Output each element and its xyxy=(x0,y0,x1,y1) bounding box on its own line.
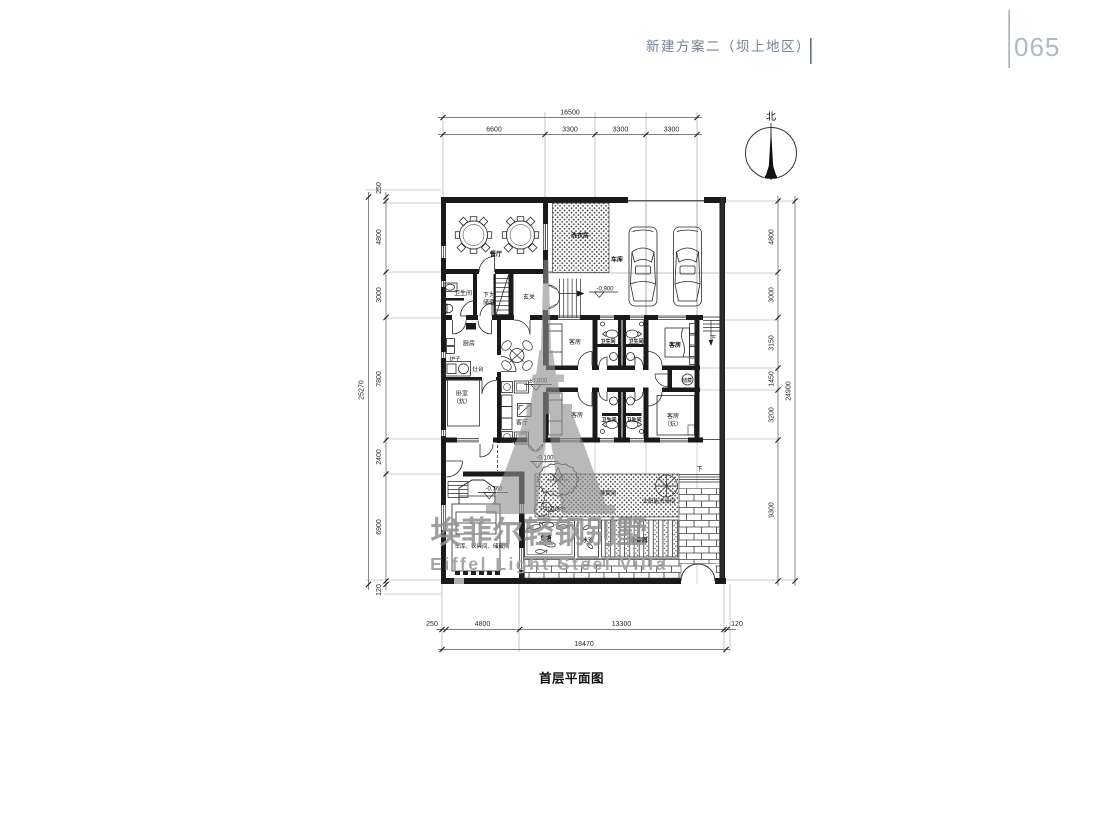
svg-text:6900: 6900 xyxy=(376,519,383,535)
svg-text:250: 250 xyxy=(376,182,383,194)
svg-text:卫生间: 卫生间 xyxy=(628,338,643,345)
svg-text:120: 120 xyxy=(376,584,383,596)
svg-text:4800: 4800 xyxy=(475,621,491,628)
svg-text:下: 下 xyxy=(696,466,702,473)
svg-text:1450: 1450 xyxy=(769,371,776,387)
svg-text:3300: 3300 xyxy=(613,127,629,134)
svg-text:250: 250 xyxy=(426,621,438,628)
svg-text:4800: 4800 xyxy=(769,229,776,245)
svg-text:卫生间: 卫生间 xyxy=(454,289,472,297)
svg-text:客房: 客房 xyxy=(668,341,681,349)
svg-text:储藏: 储藏 xyxy=(483,299,495,307)
svg-text:3150: 3150 xyxy=(769,335,776,351)
svg-text:9300: 9300 xyxy=(769,502,776,518)
svg-text:3200: 3200 xyxy=(769,407,776,423)
svg-text:6600: 6600 xyxy=(486,127,502,134)
svg-text:洗衣房: 洗衣房 xyxy=(571,232,589,240)
svg-text:玄关: 玄关 xyxy=(523,293,535,301)
svg-text:厨房: 厨房 xyxy=(463,340,475,348)
svg-text:Eiffel Light Steel Villa: Eiffel Light Steel Villa xyxy=(430,554,668,574)
svg-text:13300: 13300 xyxy=(612,621,632,628)
svg-text:餐厅: 餐厅 xyxy=(489,250,502,258)
svg-text:下: 下 xyxy=(710,335,716,342)
svg-text:下为: 下为 xyxy=(483,291,495,299)
svg-text:16500: 16500 xyxy=(560,110,580,117)
svg-text:3000: 3000 xyxy=(769,287,776,303)
svg-text:3300: 3300 xyxy=(664,127,680,134)
svg-text:车库: 车库 xyxy=(611,256,623,264)
svg-text:（炕）: （炕） xyxy=(664,420,682,428)
svg-text:客房: 客房 xyxy=(569,338,581,346)
svg-text:3000: 3000 xyxy=(376,287,383,303)
svg-text:24900: 24900 xyxy=(786,381,793,401)
svg-text:首层平面图: 首层平面图 xyxy=(539,671,604,686)
svg-text:7800: 7800 xyxy=(376,371,383,387)
svg-text:储藏: 储藏 xyxy=(682,377,692,384)
svg-text:（炕）: （炕） xyxy=(453,398,471,406)
svg-text:炉子: 炉子 xyxy=(449,355,461,363)
svg-text:埃菲尔轻钢别墅: 埃菲尔轻钢别墅 xyxy=(431,516,648,550)
svg-text:客房: 客房 xyxy=(667,412,679,420)
svg-text:25270: 25270 xyxy=(359,380,366,400)
svg-text:北: 北 xyxy=(766,111,776,123)
svg-text:-0.900: -0.900 xyxy=(596,287,614,293)
svg-text:新建方案二（坝上地区）: 新建方案二（坝上地区） xyxy=(646,38,811,54)
svg-text:太阳能洗澡间: 太阳能洗澡间 xyxy=(642,497,675,505)
svg-text:卫生间: 卫生间 xyxy=(600,338,615,345)
svg-text:4800: 4800 xyxy=(376,229,383,245)
svg-text:065: 065 xyxy=(1014,32,1060,62)
svg-text:卫生间: 卫生间 xyxy=(601,417,616,424)
svg-text:灶台: 灶台 xyxy=(472,365,484,373)
svg-text:2400: 2400 xyxy=(376,449,383,465)
svg-text:3300: 3300 xyxy=(562,127,578,134)
svg-text:卧室: 卧室 xyxy=(456,390,468,398)
svg-text:18470: 18470 xyxy=(574,641,594,648)
svg-text:120: 120 xyxy=(731,621,743,628)
svg-text:卫生间: 卫生间 xyxy=(626,417,641,424)
